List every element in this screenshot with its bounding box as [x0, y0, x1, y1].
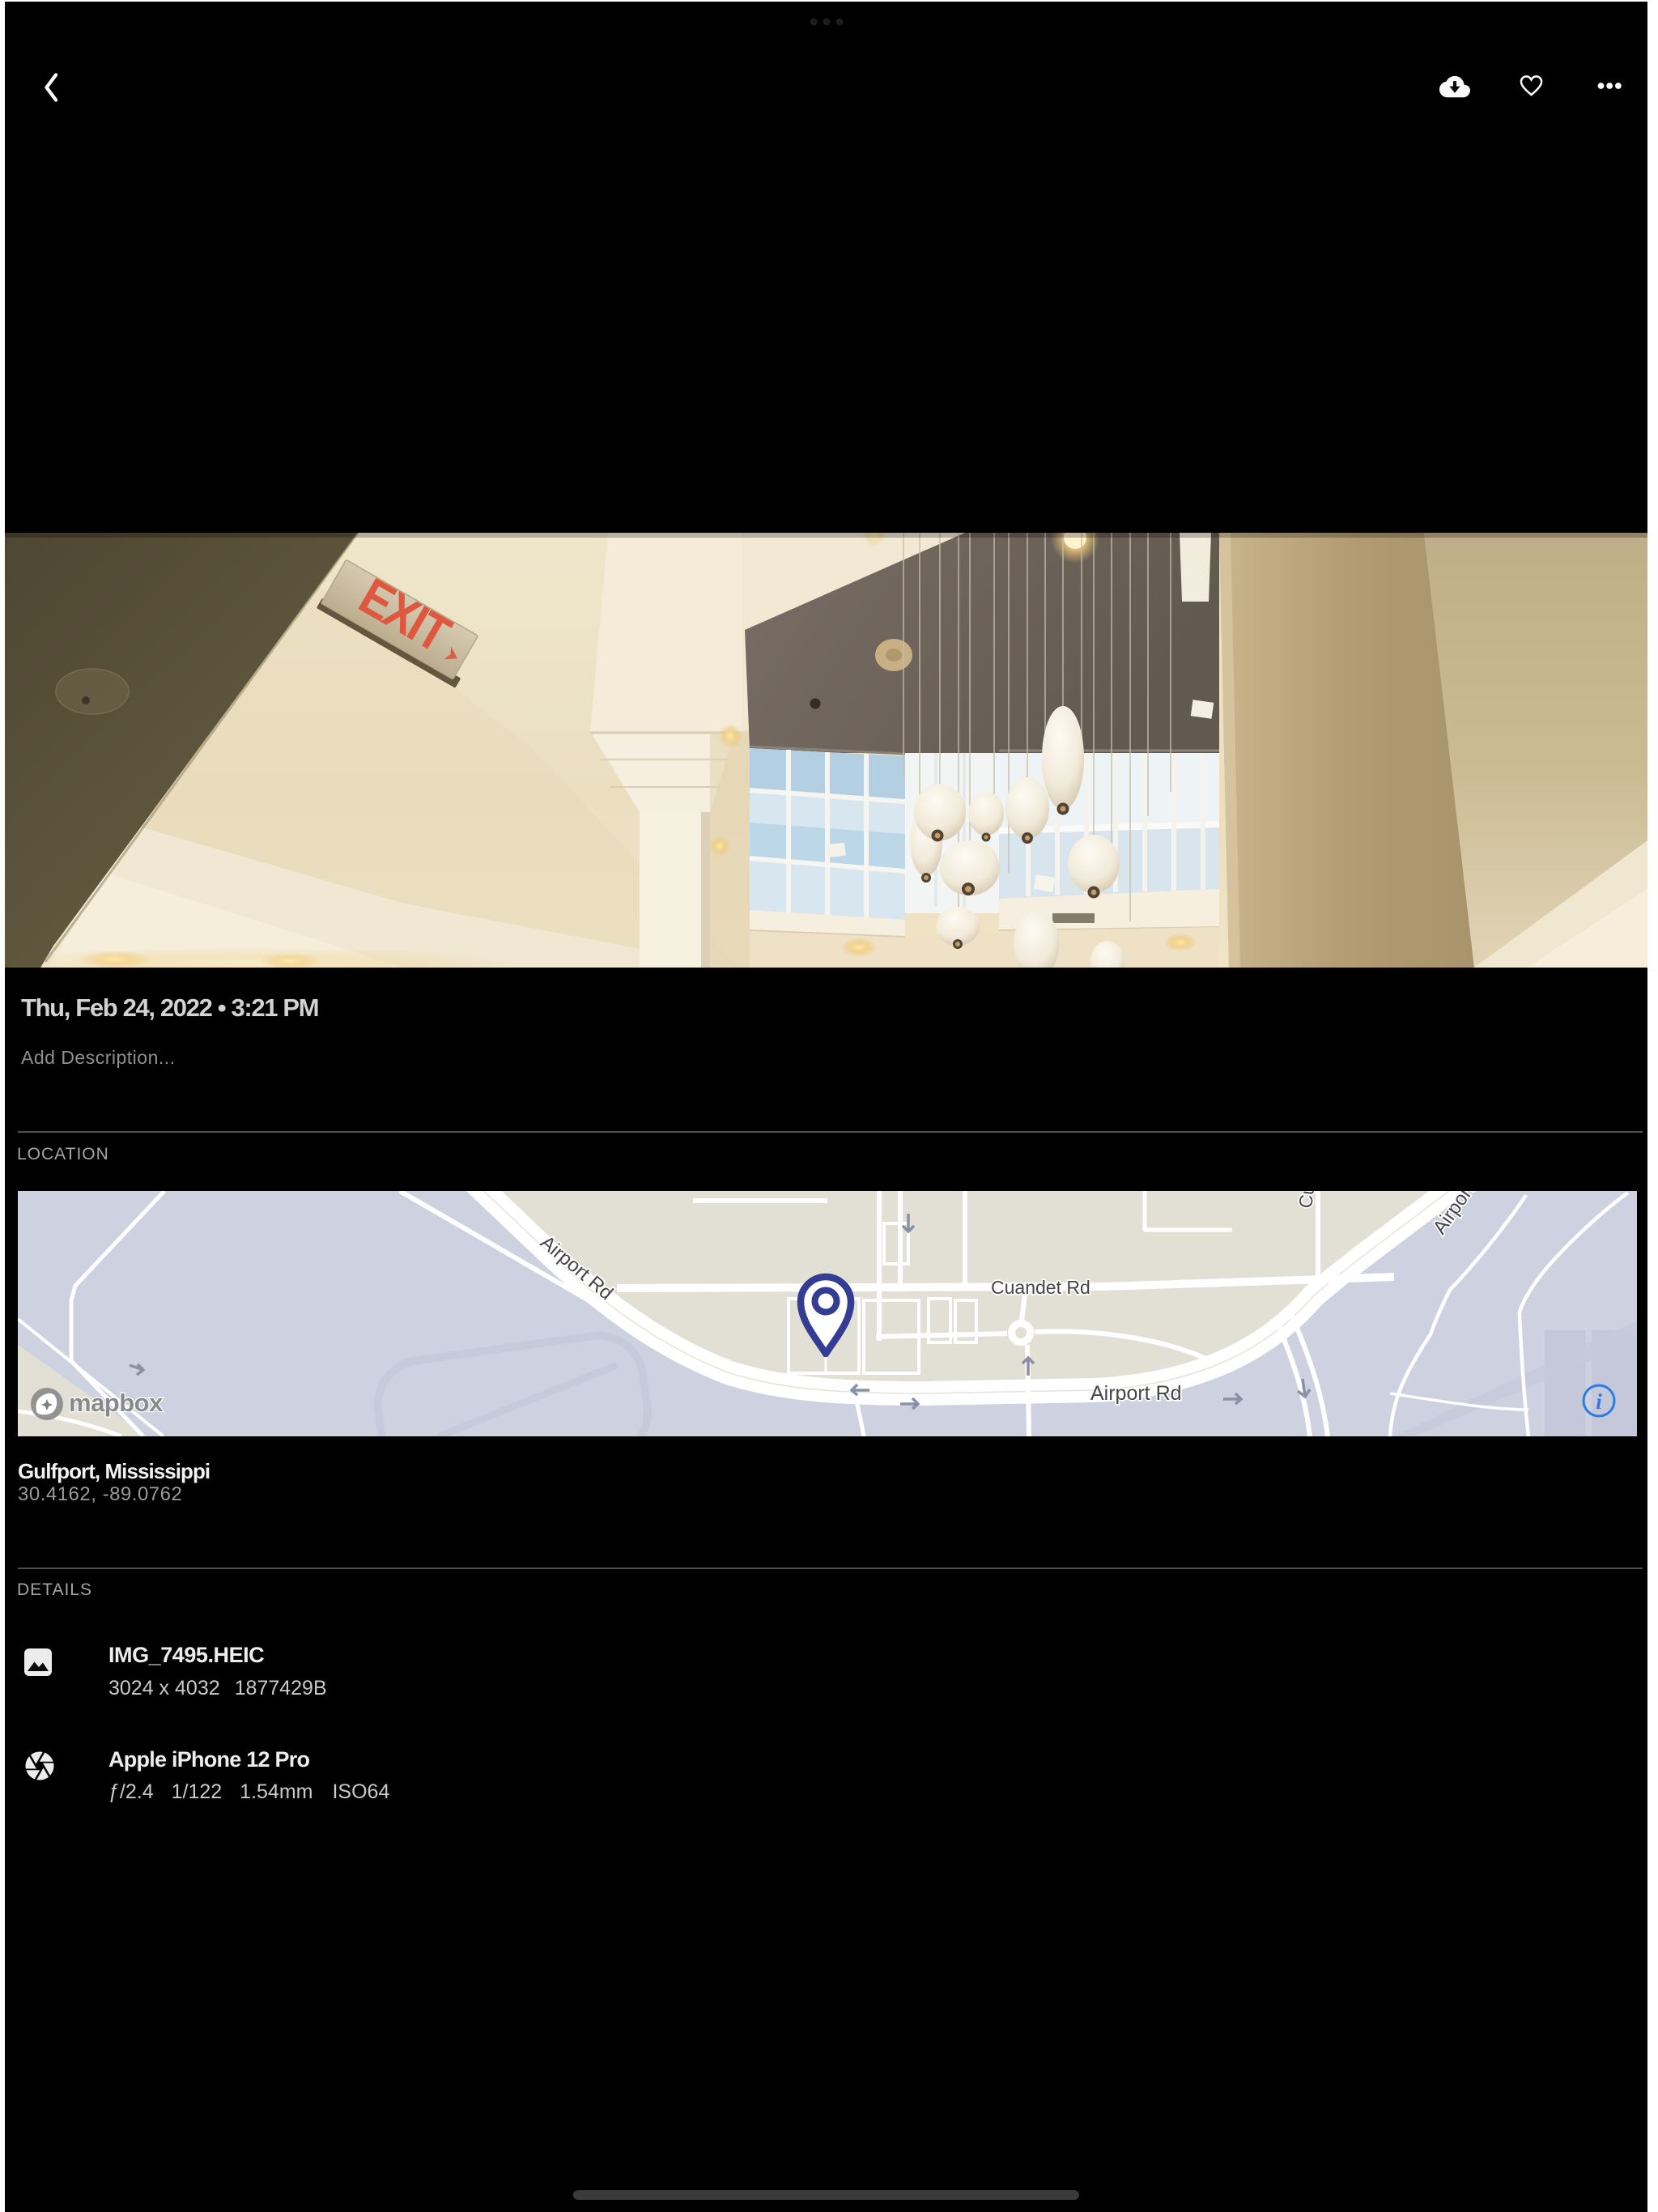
svg-text:Airport Rd: Airport Rd — [1090, 1382, 1182, 1405]
svg-text:Cuandet Rd: Cuandet Rd — [991, 1277, 1090, 1298]
svg-text:Cu: Cu — [1295, 1191, 1318, 1210]
svg-text:mapbox: mapbox — [69, 1389, 164, 1417]
svg-text:i: i — [1596, 1389, 1602, 1414]
